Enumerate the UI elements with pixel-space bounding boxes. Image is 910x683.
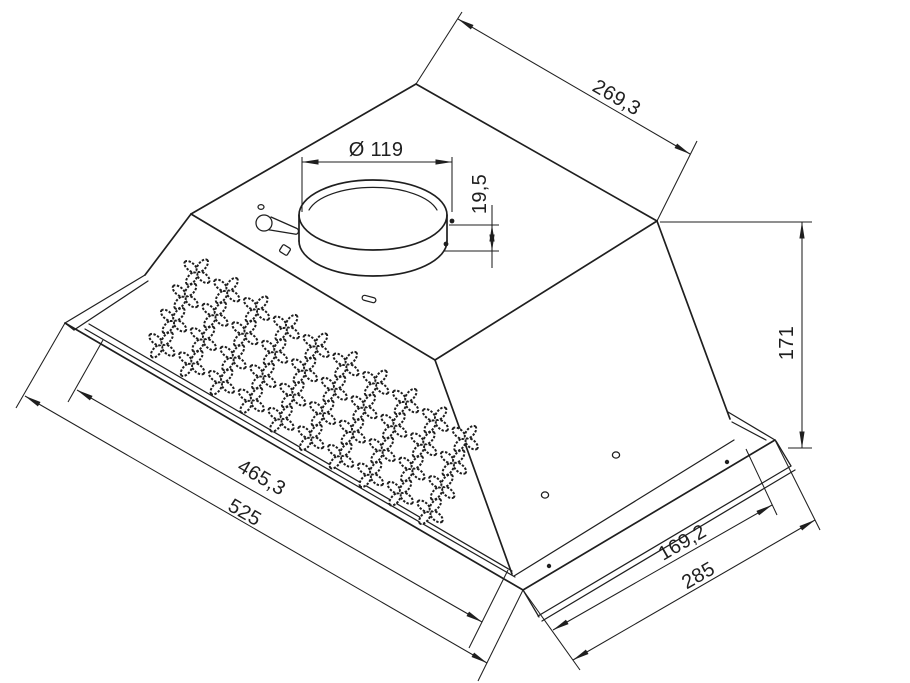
face-hole — [612, 452, 619, 458]
perforation-cross — [272, 313, 301, 342]
perforation-cross — [302, 331, 331, 360]
perforation-cross — [189, 324, 218, 353]
perforation-cross — [451, 424, 480, 453]
perforation-cross — [278, 380, 307, 409]
perforation-cross — [338, 417, 367, 446]
flange-hole — [547, 564, 551, 568]
perforation-cross — [326, 441, 355, 470]
perforation-cross — [331, 350, 360, 379]
dim-label-cutout-width: 465,3 — [234, 455, 290, 500]
dim-label-spigot-height: 19,5 — [469, 174, 491, 214]
perforation-cross — [415, 497, 444, 526]
dim-label-spigot-diameter: Ø 119 — [349, 139, 404, 161]
perforation-cross — [368, 435, 397, 464]
drawing-canvas: 269,3 Ø 119 19,5 171 465,3 — [0, 0, 910, 683]
perforation-cross — [219, 343, 248, 372]
perforation-cross — [427, 472, 456, 501]
perforation-cross — [397, 454, 426, 483]
dim-cutout-depth: 169,2 — [523, 449, 777, 670]
perforation-cross — [171, 282, 200, 311]
duct-spigot — [299, 180, 447, 276]
keyhole-slot-tail — [269, 217, 299, 234]
perforation-cross — [391, 387, 420, 416]
rivet-dot — [444, 242, 449, 247]
dimension-annotations: 269,3 Ø 119 19,5 171 465,3 — [16, 12, 820, 681]
perforation-cross — [230, 319, 259, 348]
oblong-hole — [362, 295, 377, 303]
perforation-cross — [200, 300, 229, 329]
perforation-grid — [147, 257, 480, 526]
perforation-cross — [386, 478, 415, 507]
perforation-cross — [290, 356, 319, 385]
perforation-cross — [349, 393, 378, 422]
dim-body-height: 171 — [660, 222, 812, 448]
dim-overall-depth: 285 — [573, 440, 820, 660]
perforation-cross — [439, 448, 468, 477]
square-hole — [279, 244, 291, 256]
perforation-cross — [320, 374, 349, 403]
perforation-cross — [242, 294, 271, 323]
keyhole-slot — [256, 215, 272, 231]
dim-label-overall-depth: 285 — [678, 558, 719, 594]
dim-label-top-depth: 269,3 — [589, 75, 645, 120]
rivet-dot — [450, 219, 455, 224]
perforation-cross — [266, 404, 295, 433]
perforation-cross — [182, 257, 211, 286]
perforation-cross — [159, 306, 188, 335]
perforation-cross — [361, 368, 390, 397]
perforation-cross — [356, 460, 385, 489]
perforation-cross — [421, 405, 450, 434]
perforation-cross — [409, 430, 438, 459]
dim-label-cutout-depth: 169,2 — [655, 520, 711, 565]
dim-label-body-height: 171 — [776, 326, 798, 360]
perforation-cross — [248, 361, 277, 390]
dim-top-depth: 269,3 — [416, 12, 697, 221]
flange-hole — [725, 460, 729, 464]
perforation-cross — [207, 367, 236, 396]
dim-label-overall-width: 525 — [224, 495, 265, 531]
perforation-cross — [147, 330, 176, 359]
technical-drawing: 269,3 Ø 119 19,5 171 465,3 — [0, 0, 910, 683]
perforation-cross — [260, 337, 289, 366]
perforation-cross — [212, 276, 241, 305]
perforation-cross — [308, 398, 337, 427]
perforation-cross — [379, 411, 408, 440]
face-hole — [541, 492, 548, 498]
perforation-cross — [177, 349, 206, 378]
small-hole — [258, 205, 264, 210]
top-face-cutouts — [256, 205, 454, 304]
perforation-cross — [296, 423, 325, 452]
perforation-cross — [237, 386, 266, 415]
